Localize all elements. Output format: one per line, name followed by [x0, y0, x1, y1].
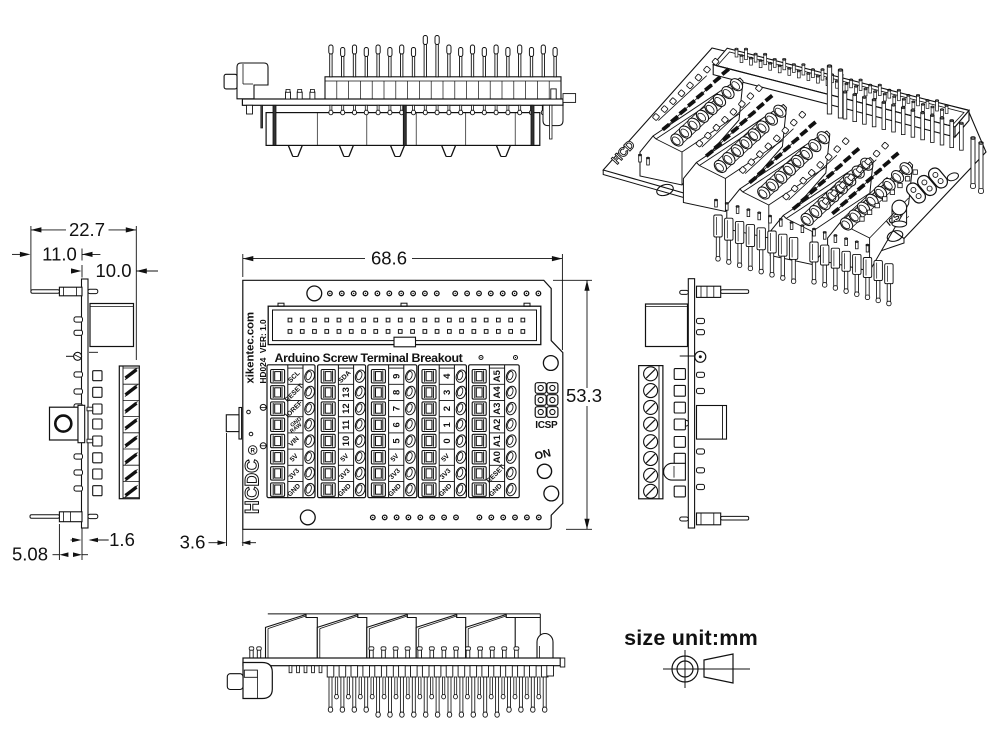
svg-text:xikentec.com: xikentec.com [245, 312, 257, 384]
svg-text:5: 5 [391, 438, 402, 444]
svg-text:R: R [250, 447, 255, 454]
svg-text:53.3: 53.3 [566, 385, 602, 406]
svg-text:13: 13 [341, 387, 352, 398]
svg-text:11: 11 [341, 419, 352, 430]
svg-text:3: 3 [442, 390, 453, 395]
svg-text:1: 1 [442, 421, 453, 427]
svg-text:A3: A3 [492, 403, 503, 415]
svg-text:A0: A0 [492, 451, 503, 463]
svg-text:7: 7 [391, 406, 402, 411]
svg-text:10.0: 10.0 [95, 260, 131, 281]
svg-text:A5: A5 [492, 369, 503, 382]
svg-text:5.08: 5.08 [12, 544, 48, 565]
svg-text:A1: A1 [492, 434, 503, 447]
svg-text:22.7: 22.7 [69, 219, 105, 240]
svg-text:0: 0 [442, 438, 453, 443]
svg-text:4: 4 [442, 373, 453, 379]
svg-text:A4: A4 [492, 386, 503, 399]
svg-text:ICSP: ICSP [535, 420, 558, 431]
svg-text:Arduino Screw Terminal Breakou: Arduino Screw Terminal Breakout [275, 351, 463, 365]
svg-text:3.6: 3.6 [180, 532, 206, 553]
svg-text:11.0: 11.0 [42, 243, 77, 264]
svg-text:8: 8 [391, 390, 402, 395]
svg-text:size unit:mm: size unit:mm [624, 626, 758, 650]
svg-text:1.6: 1.6 [109, 529, 135, 550]
svg-text:A2: A2 [492, 419, 503, 431]
svg-text:68.6: 68.6 [371, 248, 407, 269]
svg-text:12: 12 [341, 403, 352, 414]
svg-text:9: 9 [391, 374, 402, 379]
svg-text:2: 2 [442, 406, 453, 411]
svg-text:HCDC: HCDC [243, 459, 264, 514]
svg-text:6: 6 [391, 422, 402, 427]
svg-text:10: 10 [341, 436, 352, 447]
